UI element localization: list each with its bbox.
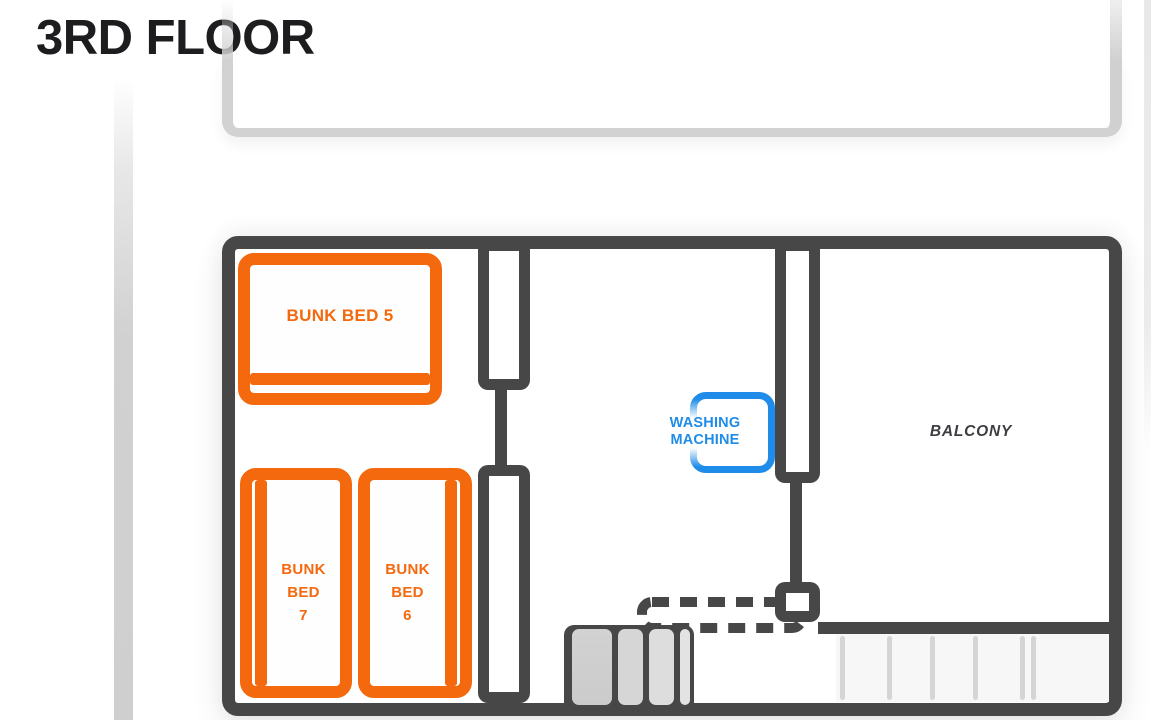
faded-stair-tread-line bbox=[973, 636, 978, 700]
floor-plan-3rd-floor: BUNK BED 5 BUNK BED 7 BUNK BED 6 WASHING… bbox=[222, 236, 1122, 716]
partition-wall-balcony bbox=[790, 481, 802, 584]
balcony-label: BALCONY bbox=[891, 423, 1051, 441]
staircase bbox=[564, 625, 694, 713]
bunk-bed-5-label: BUNK BED 5 bbox=[287, 306, 394, 326]
right-edge-guide-faded bbox=[1144, 0, 1151, 460]
bed-headboard-divider bbox=[250, 373, 430, 385]
balcony-inner-wall bbox=[818, 622, 1122, 634]
door-bedroom-top bbox=[478, 240, 530, 390]
faded-staircase bbox=[836, 634, 1109, 702]
faded-stair-tread-line bbox=[1031, 636, 1036, 700]
floor-plan-page: 3RD FLOOR bbox=[0, 0, 1152, 720]
bed-headboard-divider bbox=[255, 480, 267, 686]
door-bedroom-bottom bbox=[478, 465, 530, 703]
upper-floor-outline-faded bbox=[222, 60, 1122, 137]
faded-stair-tread-line bbox=[887, 636, 892, 700]
page-title: 3RD FLOOR bbox=[36, 10, 315, 66]
bunk-bed-7-label: BUNK BED 7 bbox=[281, 540, 326, 627]
partition-wall-middle bbox=[495, 388, 507, 468]
faded-stair-tread-line bbox=[930, 636, 935, 700]
stair-tread bbox=[680, 629, 690, 705]
stair-tread bbox=[572, 629, 612, 705]
door-balcony bbox=[775, 240, 820, 483]
upper-floor-outline-left-fade bbox=[222, 0, 233, 62]
bed-headboard-divider bbox=[445, 480, 457, 686]
bunk-bed-6[interactable]: BUNK BED 6 bbox=[358, 468, 472, 698]
faded-stair-tread-line bbox=[1020, 636, 1025, 700]
bunk-bed-7[interactable]: BUNK BED 7 bbox=[240, 468, 352, 698]
bunk-bed-5[interactable]: BUNK BED 5 bbox=[238, 253, 442, 405]
adjacent-floor-wall-faded bbox=[114, 78, 133, 720]
upper-floor-outline-right-fade bbox=[1110, 0, 1122, 62]
bunk-bed-6-label: BUNK BED 6 bbox=[385, 540, 430, 627]
faded-stair-tread-line bbox=[840, 636, 845, 700]
stair-tread bbox=[649, 629, 674, 705]
stair-tread bbox=[618, 629, 643, 705]
wall-post bbox=[775, 582, 820, 622]
washing-machine-label: WASHING MACHINE bbox=[655, 415, 755, 449]
